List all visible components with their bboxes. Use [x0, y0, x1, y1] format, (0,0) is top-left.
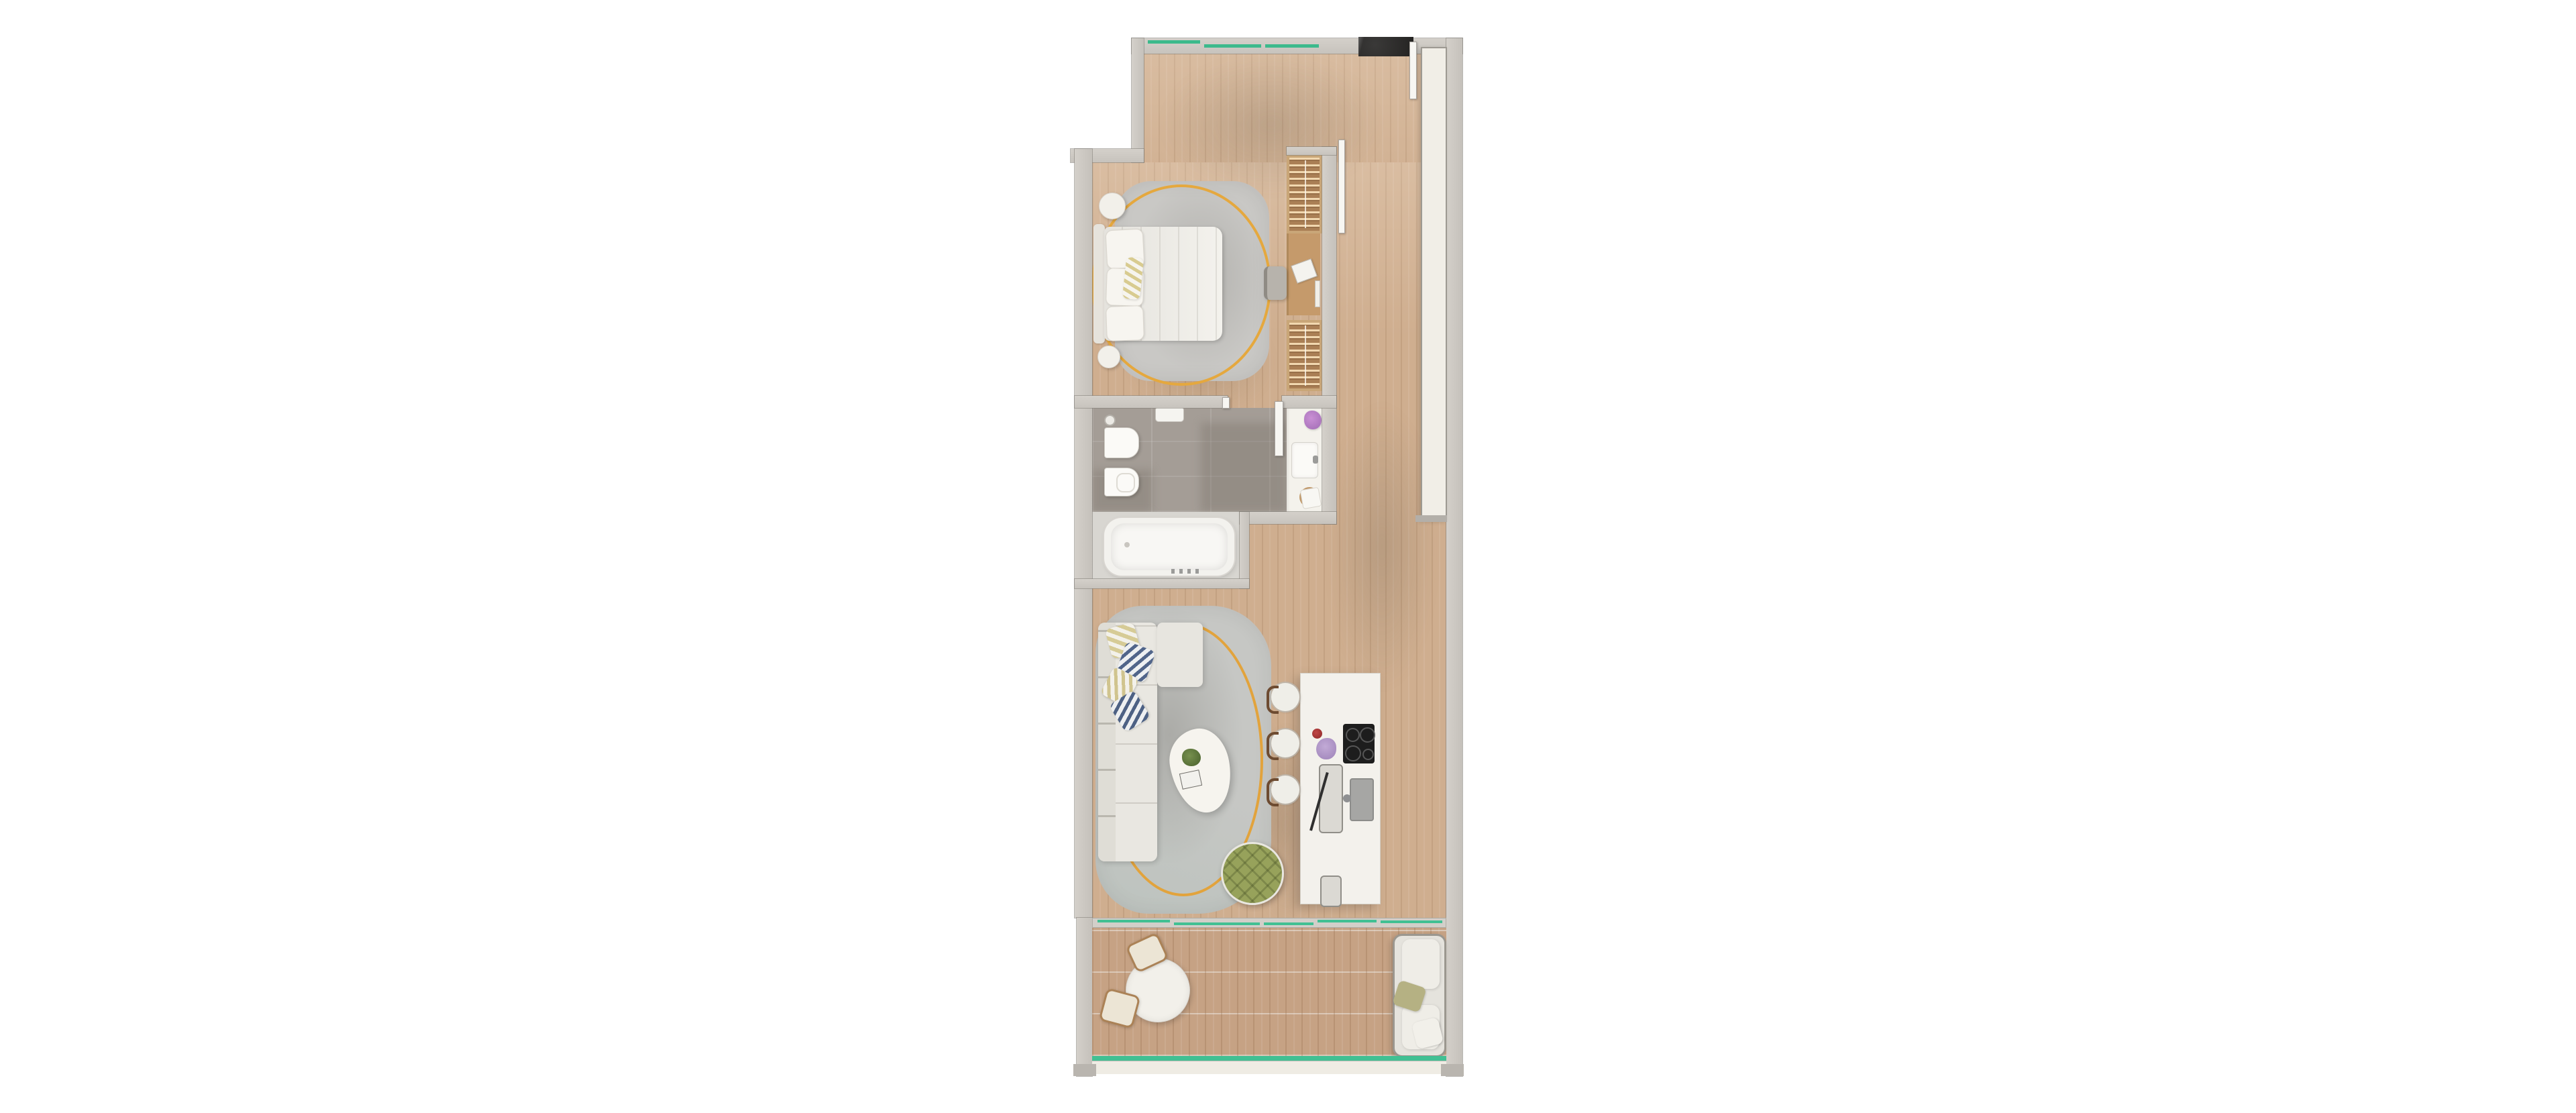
- bathroom-top-wall-right: [1282, 396, 1336, 408]
- bathtub-alcove-bottom-wall: [1075, 579, 1249, 588]
- bathroom-top-wall: [1075, 396, 1228, 408]
- cooktop-burner: [1346, 728, 1360, 742]
- window-glass-segment: [1265, 44, 1319, 48]
- slider-glass-segment: [1264, 922, 1313, 925]
- sink-faucet: [1343, 794, 1351, 802]
- desk-laptop-edge: [1315, 280, 1320, 307]
- balustrade-glass-line: [1092, 1056, 1446, 1061]
- coffee-table-plant: [1182, 749, 1201, 766]
- bedroom-hall-wall: [1322, 147, 1336, 524]
- left-wall: [1075, 149, 1092, 918]
- bathroom-door-leaf: [1275, 401, 1283, 456]
- balcony-corner-cap: [1441, 1064, 1464, 1076]
- cutting-board: [1319, 764, 1343, 833]
- panel-end-cap: [1415, 515, 1447, 522]
- slider-glass-segment: [1318, 920, 1377, 922]
- balcony-outer-ledge: [1092, 1061, 1446, 1074]
- slider-glass-segment: [1381, 920, 1442, 923]
- bathroom-tile-shading: [1201, 423, 1287, 512]
- shower-head: [1104, 415, 1116, 426]
- bathtub-drain: [1124, 542, 1130, 547]
- wardrobe-hanger-section-lower: [1287, 320, 1322, 391]
- bar-stool: [1271, 776, 1299, 804]
- nightstand-bottom: [1097, 346, 1120, 368]
- island-tray: [1320, 876, 1342, 907]
- island-flower-rose: [1312, 729, 1322, 739]
- bathtub-faucet: [1171, 569, 1201, 574]
- slider-glass-segment: [1097, 920, 1170, 922]
- towel-on-stool: [1300, 487, 1322, 509]
- cooktop-burner: [1360, 727, 1375, 743]
- bathroom-door-stop: [1222, 397, 1230, 409]
- island-sink: [1350, 778, 1374, 821]
- window-glass-segment: [1204, 44, 1261, 48]
- bedroom-pocket-door: [1338, 140, 1345, 233]
- outdoor-sofa-cushion: [1402, 939, 1440, 989]
- floor-plan-canvas: [0, 0, 2576, 1113]
- bathroom-bottom-right-wall: [1240, 512, 1336, 524]
- built-in-white-panel: [1421, 47, 1447, 521]
- upper-left-wall: [1132, 38, 1144, 162]
- bar-stool: [1271, 683, 1299, 711]
- bed-pillow: [1106, 305, 1144, 341]
- sofa-back-cushions: [1098, 623, 1116, 861]
- vanity-flower-vase: [1304, 411, 1322, 429]
- hallway-shadow: [1328, 403, 1436, 691]
- wardrobe-hanger-section-upper: [1287, 155, 1322, 233]
- vanity-faucet: [1313, 456, 1318, 464]
- entry-shadow: [1161, 54, 1382, 195]
- cooktop-burner: [1345, 745, 1361, 761]
- entry-door-mat: [1358, 37, 1413, 56]
- slider-glass-segment: [1174, 922, 1260, 925]
- sofa-chaise: [1157, 623, 1203, 687]
- right-wall: [1446, 38, 1462, 1076]
- bath-shelf-rack: [1155, 407, 1184, 422]
- cooktop-burner: [1362, 749, 1374, 760]
- island-flower-lilac: [1316, 738, 1336, 759]
- bathroom-step-wall: [1240, 512, 1249, 588]
- window-glass-segment: [1148, 40, 1200, 44]
- desk-chair: [1264, 266, 1287, 300]
- bar-stool: [1271, 729, 1299, 757]
- olive-pouf: [1221, 842, 1284, 905]
- balcony-corner-cap: [1073, 1064, 1096, 1076]
- wall-hung-toilet: [1104, 427, 1139, 458]
- entry-door-leaf: [1409, 42, 1417, 99]
- bed-headboard: [1093, 224, 1105, 343]
- wardrobe-top-cap-wall: [1287, 147, 1336, 155]
- bidet-basin-line: [1116, 473, 1135, 492]
- nightstand-top: [1099, 193, 1126, 219]
- balcony-left-wall: [1077, 918, 1092, 1076]
